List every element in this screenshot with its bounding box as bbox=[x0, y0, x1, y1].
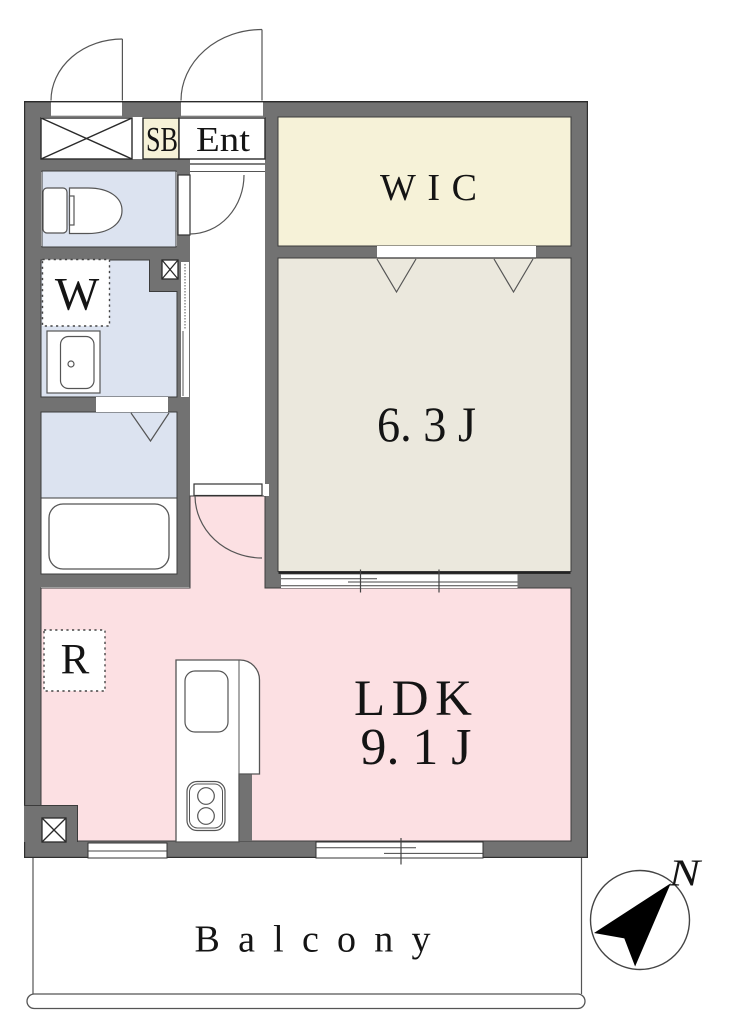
svg-text:Ent: Ent bbox=[196, 120, 250, 159]
svg-text:SB: SB bbox=[146, 120, 178, 159]
svg-text:9. 1 J: 9. 1 J bbox=[361, 719, 472, 776]
svg-text:Balcony: Balcony bbox=[195, 919, 431, 961]
svg-text:N: N bbox=[668, 853, 703, 895]
svg-text:6. 3 J: 6. 3 J bbox=[377, 396, 476, 452]
svg-text:WIC: WIC bbox=[380, 167, 477, 209]
svg-text:W: W bbox=[55, 269, 100, 321]
svg-text:R: R bbox=[61, 637, 90, 684]
